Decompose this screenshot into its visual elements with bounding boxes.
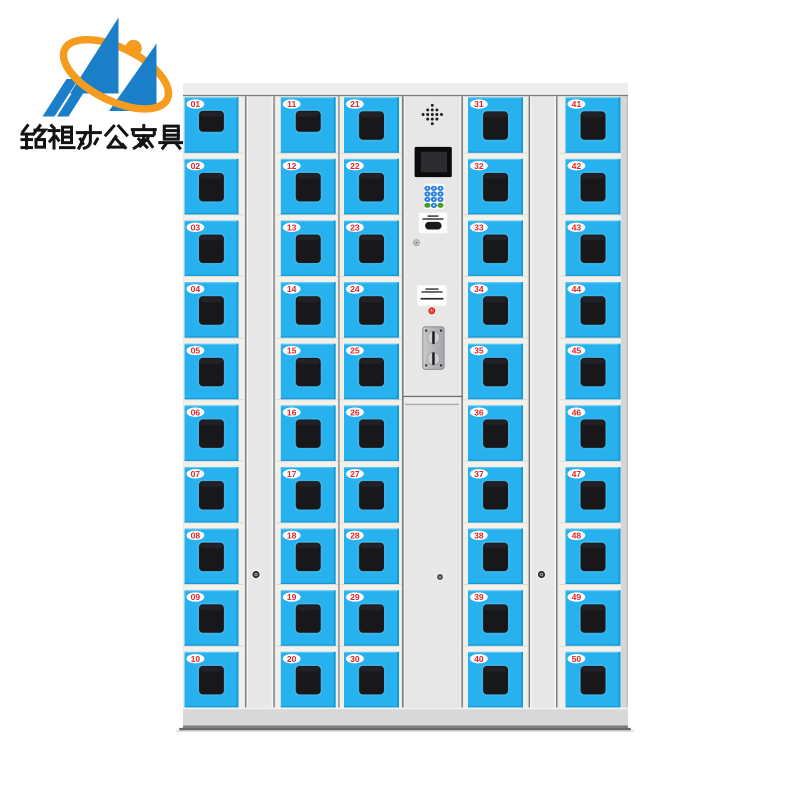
svg-text:38: 38 — [474, 531, 484, 541]
svg-text:12: 12 — [287, 161, 297, 171]
svg-text:40: 40 — [474, 654, 484, 664]
svg-text:26: 26 — [350, 407, 360, 417]
svg-text:43: 43 — [572, 222, 582, 232]
svg-text:24: 24 — [350, 284, 360, 294]
svg-text:14: 14 — [287, 284, 297, 294]
svg-text:08: 08 — [191, 531, 201, 541]
svg-text:32: 32 — [474, 161, 484, 171]
svg-text:09: 09 — [191, 592, 201, 602]
svg-text:29: 29 — [350, 592, 360, 602]
svg-text:11: 11 — [287, 99, 296, 109]
svg-text:44: 44 — [572, 284, 582, 294]
svg-text:46: 46 — [572, 407, 582, 417]
svg-text:34: 34 — [474, 284, 484, 294]
svg-text:42: 42 — [572, 161, 582, 171]
svg-text:06: 06 — [191, 407, 201, 417]
svg-text:37: 37 — [474, 469, 484, 479]
svg-text:16: 16 — [287, 407, 297, 417]
svg-text:21: 21 — [350, 99, 360, 109]
svg-text:27: 27 — [350, 469, 360, 479]
svg-text:47: 47 — [572, 469, 582, 479]
svg-text:17: 17 — [287, 469, 297, 479]
svg-text:35: 35 — [474, 346, 484, 356]
svg-text:22: 22 — [350, 161, 360, 171]
svg-text:25: 25 — [350, 346, 360, 356]
svg-text:50: 50 — [572, 654, 582, 664]
svg-text:01: 01 — [191, 99, 201, 109]
svg-text:03: 03 — [191, 222, 201, 232]
svg-text:30: 30 — [350, 654, 360, 664]
svg-text:04: 04 — [191, 284, 201, 294]
svg-text:33: 33 — [474, 222, 484, 232]
svg-text:20: 20 — [287, 654, 297, 664]
svg-text:45: 45 — [572, 346, 582, 356]
svg-text:39: 39 — [474, 592, 484, 602]
svg-text:41: 41 — [572, 99, 582, 109]
svg-text:31: 31 — [474, 99, 484, 109]
svg-text:02: 02 — [191, 161, 201, 171]
svg-text:15: 15 — [287, 346, 297, 356]
svg-text:36: 36 — [474, 407, 484, 417]
svg-text:28: 28 — [350, 531, 360, 541]
svg-text:48: 48 — [572, 531, 582, 541]
svg-text:19: 19 — [287, 592, 297, 602]
svg-text:18: 18 — [287, 531, 297, 541]
svg-text:13: 13 — [287, 222, 297, 232]
svg-text:05: 05 — [191, 346, 201, 356]
svg-text:07: 07 — [191, 469, 201, 479]
svg-text:49: 49 — [572, 592, 582, 602]
svg-text:23: 23 — [350, 222, 360, 232]
svg-text:10: 10 — [191, 654, 201, 664]
